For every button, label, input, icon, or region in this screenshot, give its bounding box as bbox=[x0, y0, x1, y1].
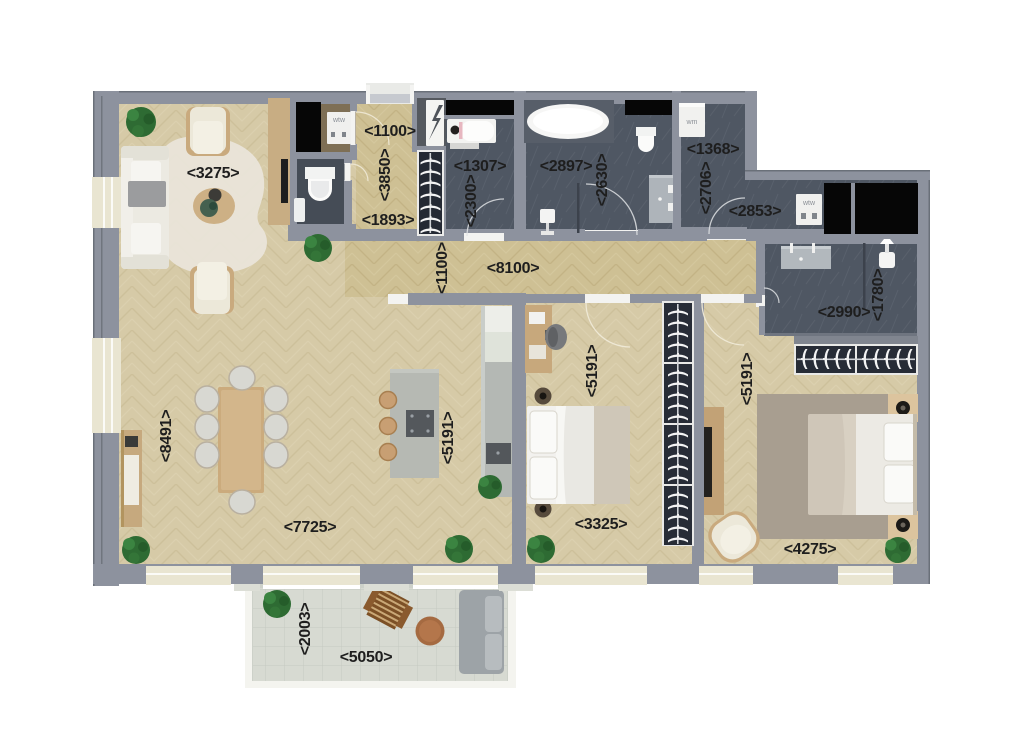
svg-text:<5191>: <5191> bbox=[739, 353, 756, 405]
svg-text:wm: wm bbox=[686, 119, 698, 126]
svg-text:<2003>: <2003> bbox=[297, 603, 314, 655]
svg-text:<5050>: <5050> bbox=[340, 649, 392, 666]
svg-text:<5191>: <5191> bbox=[584, 345, 601, 397]
svg-text:<1780>: <1780> bbox=[870, 269, 887, 321]
svg-text:<1100>: <1100> bbox=[364, 123, 416, 140]
svg-text:<2990>: <2990> bbox=[818, 304, 870, 321]
svg-text:<8100>: <8100> bbox=[487, 260, 539, 277]
svg-text:<3325>: <3325> bbox=[575, 516, 627, 533]
svg-text:<1100>: <1100> bbox=[434, 242, 451, 294]
svg-text:<2897>: <2897> bbox=[540, 158, 592, 175]
svg-text:wtw: wtw bbox=[802, 200, 816, 207]
svg-text:<7725>: <7725> bbox=[284, 519, 336, 536]
svg-text:<1307>: <1307> bbox=[454, 158, 506, 175]
svg-text:<2630>: <2630> bbox=[594, 154, 611, 206]
svg-text:<5191>: <5191> bbox=[440, 412, 457, 464]
svg-text:<2853>: <2853> bbox=[729, 203, 781, 220]
svg-text:<4275>: <4275> bbox=[784, 541, 836, 558]
svg-text:<3275>: <3275> bbox=[187, 165, 239, 182]
svg-text:<2300>: <2300> bbox=[463, 175, 480, 227]
svg-text:<2706>: <2706> bbox=[698, 162, 715, 214]
svg-text:<1368>: <1368> bbox=[687, 141, 739, 158]
svg-text:wtw: wtw bbox=[332, 117, 346, 124]
svg-text:<8491>: <8491> bbox=[158, 410, 175, 462]
svg-text:<3850>: <3850> bbox=[377, 149, 394, 201]
svg-text:<1893>: <1893> bbox=[362, 212, 414, 229]
